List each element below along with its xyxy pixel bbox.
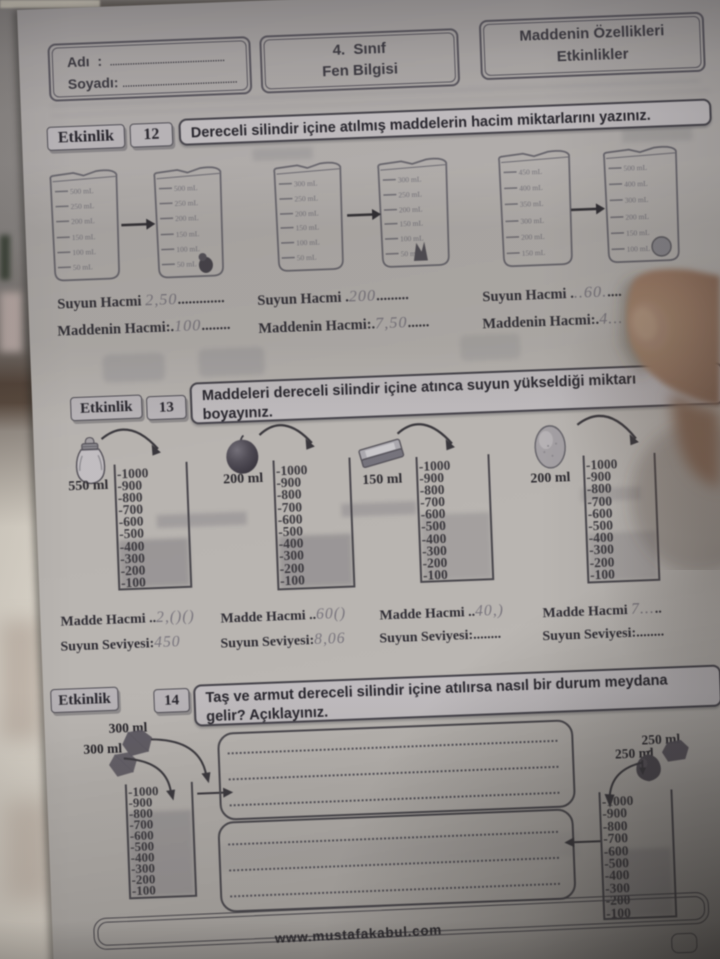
- svg-text:200 mL: 200 mL: [295, 209, 319, 219]
- svg-text:150 mL: 150 mL: [176, 229, 200, 239]
- svg-text:200 mL: 200 mL: [625, 212, 649, 222]
- svg-text:350 mL: 350 mL: [520, 199, 544, 209]
- svg-text:500 mL: 500 mL: [623, 163, 647, 173]
- svg-text:200 mL: 200 mL: [521, 232, 545, 242]
- svg-text:250 mL: 250 mL: [294, 194, 318, 204]
- svg-text:300 mL: 300 mL: [294, 179, 318, 189]
- svg-text:300 mL: 300 mL: [520, 216, 544, 226]
- svg-text:300 mL: 300 mL: [625, 195, 649, 205]
- svg-text:100 mL: 100 mL: [176, 244, 200, 254]
- svg-text:100 mL: 100 mL: [72, 247, 96, 257]
- svg-text:150 mL: 150 mL: [72, 232, 96, 242]
- svg-text:200 mL: 200 mL: [175, 213, 199, 223]
- svg-text:150 mL: 150 mL: [626, 228, 650, 238]
- svg-text:500 mL: 500 mL: [174, 183, 198, 193]
- svg-text:100 mL: 100 mL: [296, 238, 320, 248]
- svg-text:150 mL: 150 mL: [399, 219, 423, 229]
- svg-text:300 mL: 300 mL: [398, 175, 422, 185]
- svg-text:500 mL: 500 mL: [70, 186, 94, 196]
- svg-text:100 mL: 100 mL: [626, 244, 650, 254]
- svg-text:50 mL: 50 mL: [297, 253, 318, 263]
- svg-text:200 mL: 200 mL: [399, 205, 423, 215]
- svg-text:50 mL: 50 mL: [73, 262, 94, 272]
- svg-text:250 mL: 250 mL: [398, 190, 422, 200]
- svg-text:400 mL: 400 mL: [519, 183, 543, 193]
- svg-text:150 mL: 150 mL: [295, 223, 319, 233]
- svg-text:150 mL: 150 mL: [522, 248, 546, 258]
- svg-text:400 mL: 400 mL: [624, 179, 648, 189]
- svg-text:50 mL: 50 mL: [177, 259, 198, 269]
- svg-text:100 mL: 100 mL: [400, 234, 424, 244]
- svg-text:250 mL: 250 mL: [70, 201, 94, 211]
- svg-text:250 mL: 250 mL: [174, 198, 198, 208]
- svg-text:450 mL: 450 mL: [518, 167, 542, 177]
- svg-text:200 mL: 200 mL: [71, 216, 95, 226]
